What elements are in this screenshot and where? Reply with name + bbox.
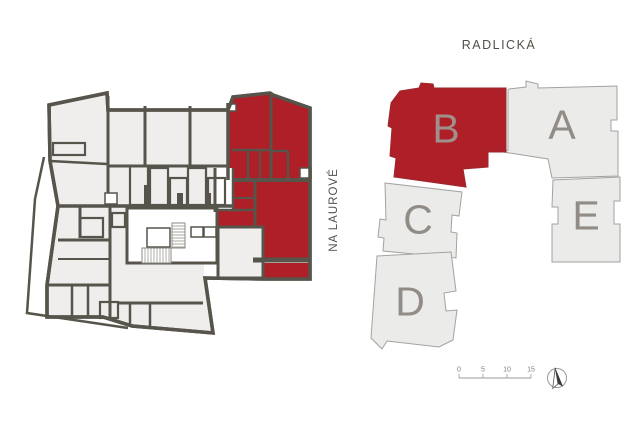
floor-plan <box>27 93 311 333</box>
scale-label-5: 5 <box>481 367 485 374</box>
scale-label-0: 0 <box>457 367 461 374</box>
scale-label-10: 10 <box>503 367 511 374</box>
building-label-b[interactable]: B <box>432 109 459 150</box>
adjacent-room <box>218 227 263 278</box>
street-label-radlicka: RADLICKÁ <box>462 38 537 52</box>
building-label-d[interactable]: D <box>395 282 425 323</box>
building-label-a[interactable]: A <box>548 105 575 146</box>
building-label-e[interactable]: E <box>572 196 599 237</box>
page: RADLICKÁ NA LAUROVÉ A B C D E 0 5 10 15 <box>0 0 631 422</box>
scale-bar <box>459 374 531 378</box>
building-label-c[interactable]: C <box>403 200 433 241</box>
north-arrow-icon <box>546 366 568 389</box>
plans-graphic <box>0 0 631 422</box>
scale-label-15: 15 <box>527 367 535 374</box>
street-label-na-laurove: NA LAUROVÉ <box>328 168 340 252</box>
